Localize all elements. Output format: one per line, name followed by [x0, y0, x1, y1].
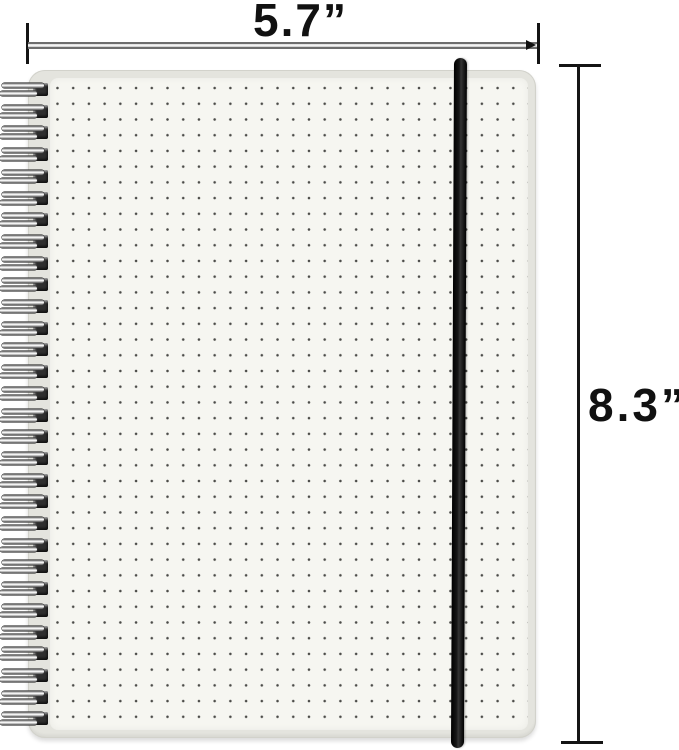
- coil-wire-top: [2, 517, 44, 522]
- coil-wire-top: [2, 192, 44, 197]
- coil-wire-bottom: [0, 699, 37, 704]
- coil-wire-bottom: [0, 156, 37, 161]
- coil-wire-top: [2, 105, 44, 110]
- height-measure-line: [577, 66, 580, 744]
- coil-wire-bottom: [0, 525, 37, 530]
- coil-wire-top: [2, 126, 44, 131]
- coil-wire-top: [2, 213, 44, 218]
- coil-wire-bottom: [0, 720, 37, 725]
- coil-wire-bottom: [0, 200, 37, 205]
- coil-wire-top: [2, 474, 44, 479]
- spiral-coil: [0, 452, 50, 468]
- coil-wire-top: [2, 409, 44, 414]
- spiral-coil: [0, 148, 50, 164]
- coil-wire-bottom: [0, 590, 37, 595]
- spiral-coil: [0, 539, 50, 555]
- coil-wire-bottom: [0, 612, 37, 617]
- spiral-coil: [0, 192, 50, 208]
- coil-wire-bottom: [0, 677, 37, 682]
- spiral-coil: [0, 213, 50, 229]
- coil-wire-bottom: [0, 417, 37, 422]
- height-dimension-label: 8.3”: [588, 382, 679, 428]
- coil-wire-top: [2, 712, 44, 717]
- spiral-coil: [0, 300, 50, 316]
- spiral-coil: [0, 430, 50, 446]
- coil-wire-bottom: [0, 482, 37, 487]
- coil-wire-top: [2, 322, 44, 327]
- width-tick-right: [537, 23, 540, 64]
- coil-wire-bottom: [0, 330, 37, 335]
- spiral-coil: [0, 626, 50, 642]
- coil-wire-top: [2, 83, 44, 88]
- coil-wire-bottom: [0, 547, 37, 552]
- coil-wire-bottom: [0, 351, 37, 356]
- coil-wire-top: [2, 669, 44, 674]
- coil-wire-top: [2, 539, 44, 544]
- spiral-coil: [0, 712, 50, 728]
- spiral-coil: [0, 691, 50, 707]
- spiral-coil: [0, 409, 50, 425]
- spiral-coil: [0, 647, 50, 663]
- coil-wire-bottom: [0, 395, 37, 400]
- spiral-coil: [0, 83, 50, 99]
- coil-wire-top: [2, 235, 44, 240]
- coil-wire-top: [2, 626, 44, 631]
- coil-wire-bottom: [0, 91, 37, 96]
- spiral-coil: [0, 560, 50, 576]
- spiral-coil: [0, 105, 50, 121]
- coil-wire-bottom: [0, 634, 37, 639]
- coil-wire-top: [2, 604, 44, 609]
- spiral-coil: [0, 170, 50, 186]
- spiral-coil: [0, 495, 50, 511]
- coil-wire-bottom: [0, 308, 37, 313]
- coil-wire-top: [2, 495, 44, 500]
- coil-wire-bottom: [0, 178, 37, 183]
- coil-wire-bottom: [0, 286, 37, 291]
- coil-wire-bottom: [0, 221, 37, 226]
- spiral-coil: [0, 387, 50, 403]
- coil-wire-top: [2, 691, 44, 696]
- spiral-coil: [0, 582, 50, 598]
- coil-wire-bottom: [0, 373, 37, 378]
- spiral-coil: [0, 517, 50, 533]
- coil-wire-top: [2, 148, 44, 153]
- spiral-coil: [0, 235, 50, 251]
- coil-wire-top: [2, 582, 44, 587]
- coil-wire-bottom: [0, 503, 37, 508]
- coil-wire-bottom: [0, 438, 37, 443]
- coil-wire-bottom: [0, 134, 37, 139]
- coil-wire-top: [2, 647, 44, 652]
- spiral-coil: [0, 365, 50, 381]
- coil-wire-top: [2, 170, 44, 175]
- coil-wire-top: [2, 300, 44, 305]
- height-tick-top: [559, 64, 601, 67]
- product-photo: 5.7” 8.3”: [0, 0, 679, 750]
- spiral-coil: [0, 669, 50, 685]
- coil-wire-bottom: [0, 655, 37, 660]
- coil-wire-bottom: [0, 460, 37, 465]
- spiral-coil: [0, 126, 50, 142]
- height-tick-bottom: [561, 741, 603, 744]
- spiral-binding: [0, 0, 60, 750]
- coil-wire-top: [2, 257, 44, 262]
- coil-wire-top: [2, 560, 44, 565]
- coil-wire-top: [2, 387, 44, 392]
- spiral-coil: [0, 474, 50, 490]
- coil-wire-bottom: [0, 265, 37, 270]
- spiral-coil: [0, 278, 50, 294]
- coil-wire-top: [2, 452, 44, 457]
- measure-arrowhead-icon: [526, 40, 536, 50]
- width-measure-bar: [28, 42, 537, 49]
- coil-wire-bottom: [0, 568, 37, 573]
- coil-wire-top: [2, 278, 44, 283]
- width-dimension-label: 5.7”: [228, 0, 373, 43]
- spiral-coil: [0, 257, 50, 273]
- coil-wire-top: [2, 430, 44, 435]
- coil-wire-bottom: [0, 243, 37, 248]
- spiral-coil: [0, 343, 50, 359]
- coil-wire-top: [2, 365, 44, 370]
- coil-wire-top: [2, 343, 44, 348]
- spiral-coil: [0, 604, 50, 620]
- spiral-coil: [0, 322, 50, 338]
- coil-wire-bottom: [0, 113, 37, 118]
